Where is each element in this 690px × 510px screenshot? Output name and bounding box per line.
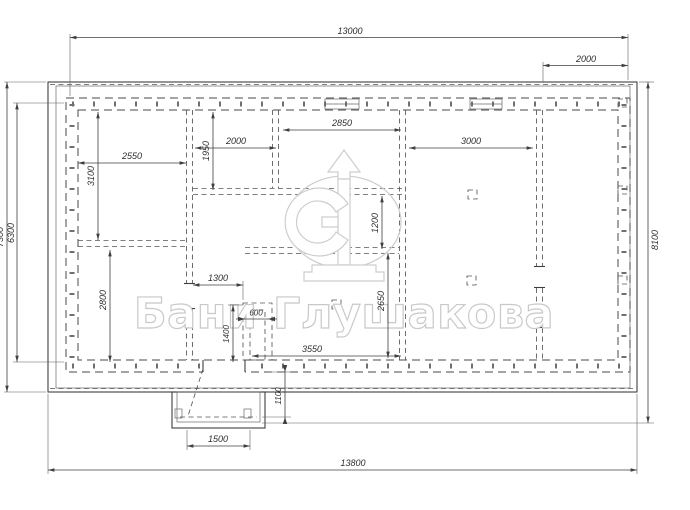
wall-joint-marker: [618, 276, 627, 284]
dim-top-right-offset: 2000: [575, 54, 596, 64]
dim-room-tl-width: 2550: [121, 151, 142, 161]
dim-room-tc-width: 2850: [331, 118, 352, 128]
dim-room-tm-width: 2000: [225, 136, 246, 146]
dim-stove-width: 600: [249, 309, 263, 318]
dim-stove-depth: 1400: [222, 325, 231, 343]
dim-corridor-width: 1300: [208, 273, 228, 283]
dim-room-tl-depth: 3100: [86, 166, 96, 186]
brand-logo: [285, 150, 401, 281]
dim-bottom-width: 13800: [340, 458, 365, 468]
porch: [172, 360, 265, 428]
dim-porch-width: 1500: [208, 434, 228, 444]
window-symbol: [325, 99, 359, 109]
dim-room-bl-depth: 2800: [98, 290, 108, 311]
logo-arrow-icon: [328, 150, 360, 179]
dim-room-mr-width: 3000: [461, 136, 481, 146]
post-marker: [468, 190, 477, 199]
floor-plan-drawing: Бани Глушакова 13000 2000 7300 6300: [0, 0, 690, 510]
dim-left-outer-depth: 7300: [0, 227, 5, 247]
dim-room-bm-depth: 2650: [376, 291, 386, 312]
dim-passage-depth: 1200: [370, 213, 380, 233]
window-symbol: [470, 99, 502, 109]
brand-watermark-text: Бани Глушакова: [134, 289, 554, 339]
dim-room-bm-width: 3550: [302, 344, 322, 354]
dim-left-inner-depth: 6300: [6, 223, 16, 243]
dim-porch-depth: 1100: [274, 387, 283, 405]
dim-right-depth: 8100: [650, 230, 660, 250]
post-marker: [467, 276, 476, 285]
floor-plan-canvas: Бани Глушакова 13000 2000 7300 6300: [0, 0, 690, 510]
dim-top-width: 13000: [337, 26, 362, 36]
logo-pedestal: [304, 265, 384, 281]
dim-room-tm-depth: 1950: [201, 141, 211, 161]
